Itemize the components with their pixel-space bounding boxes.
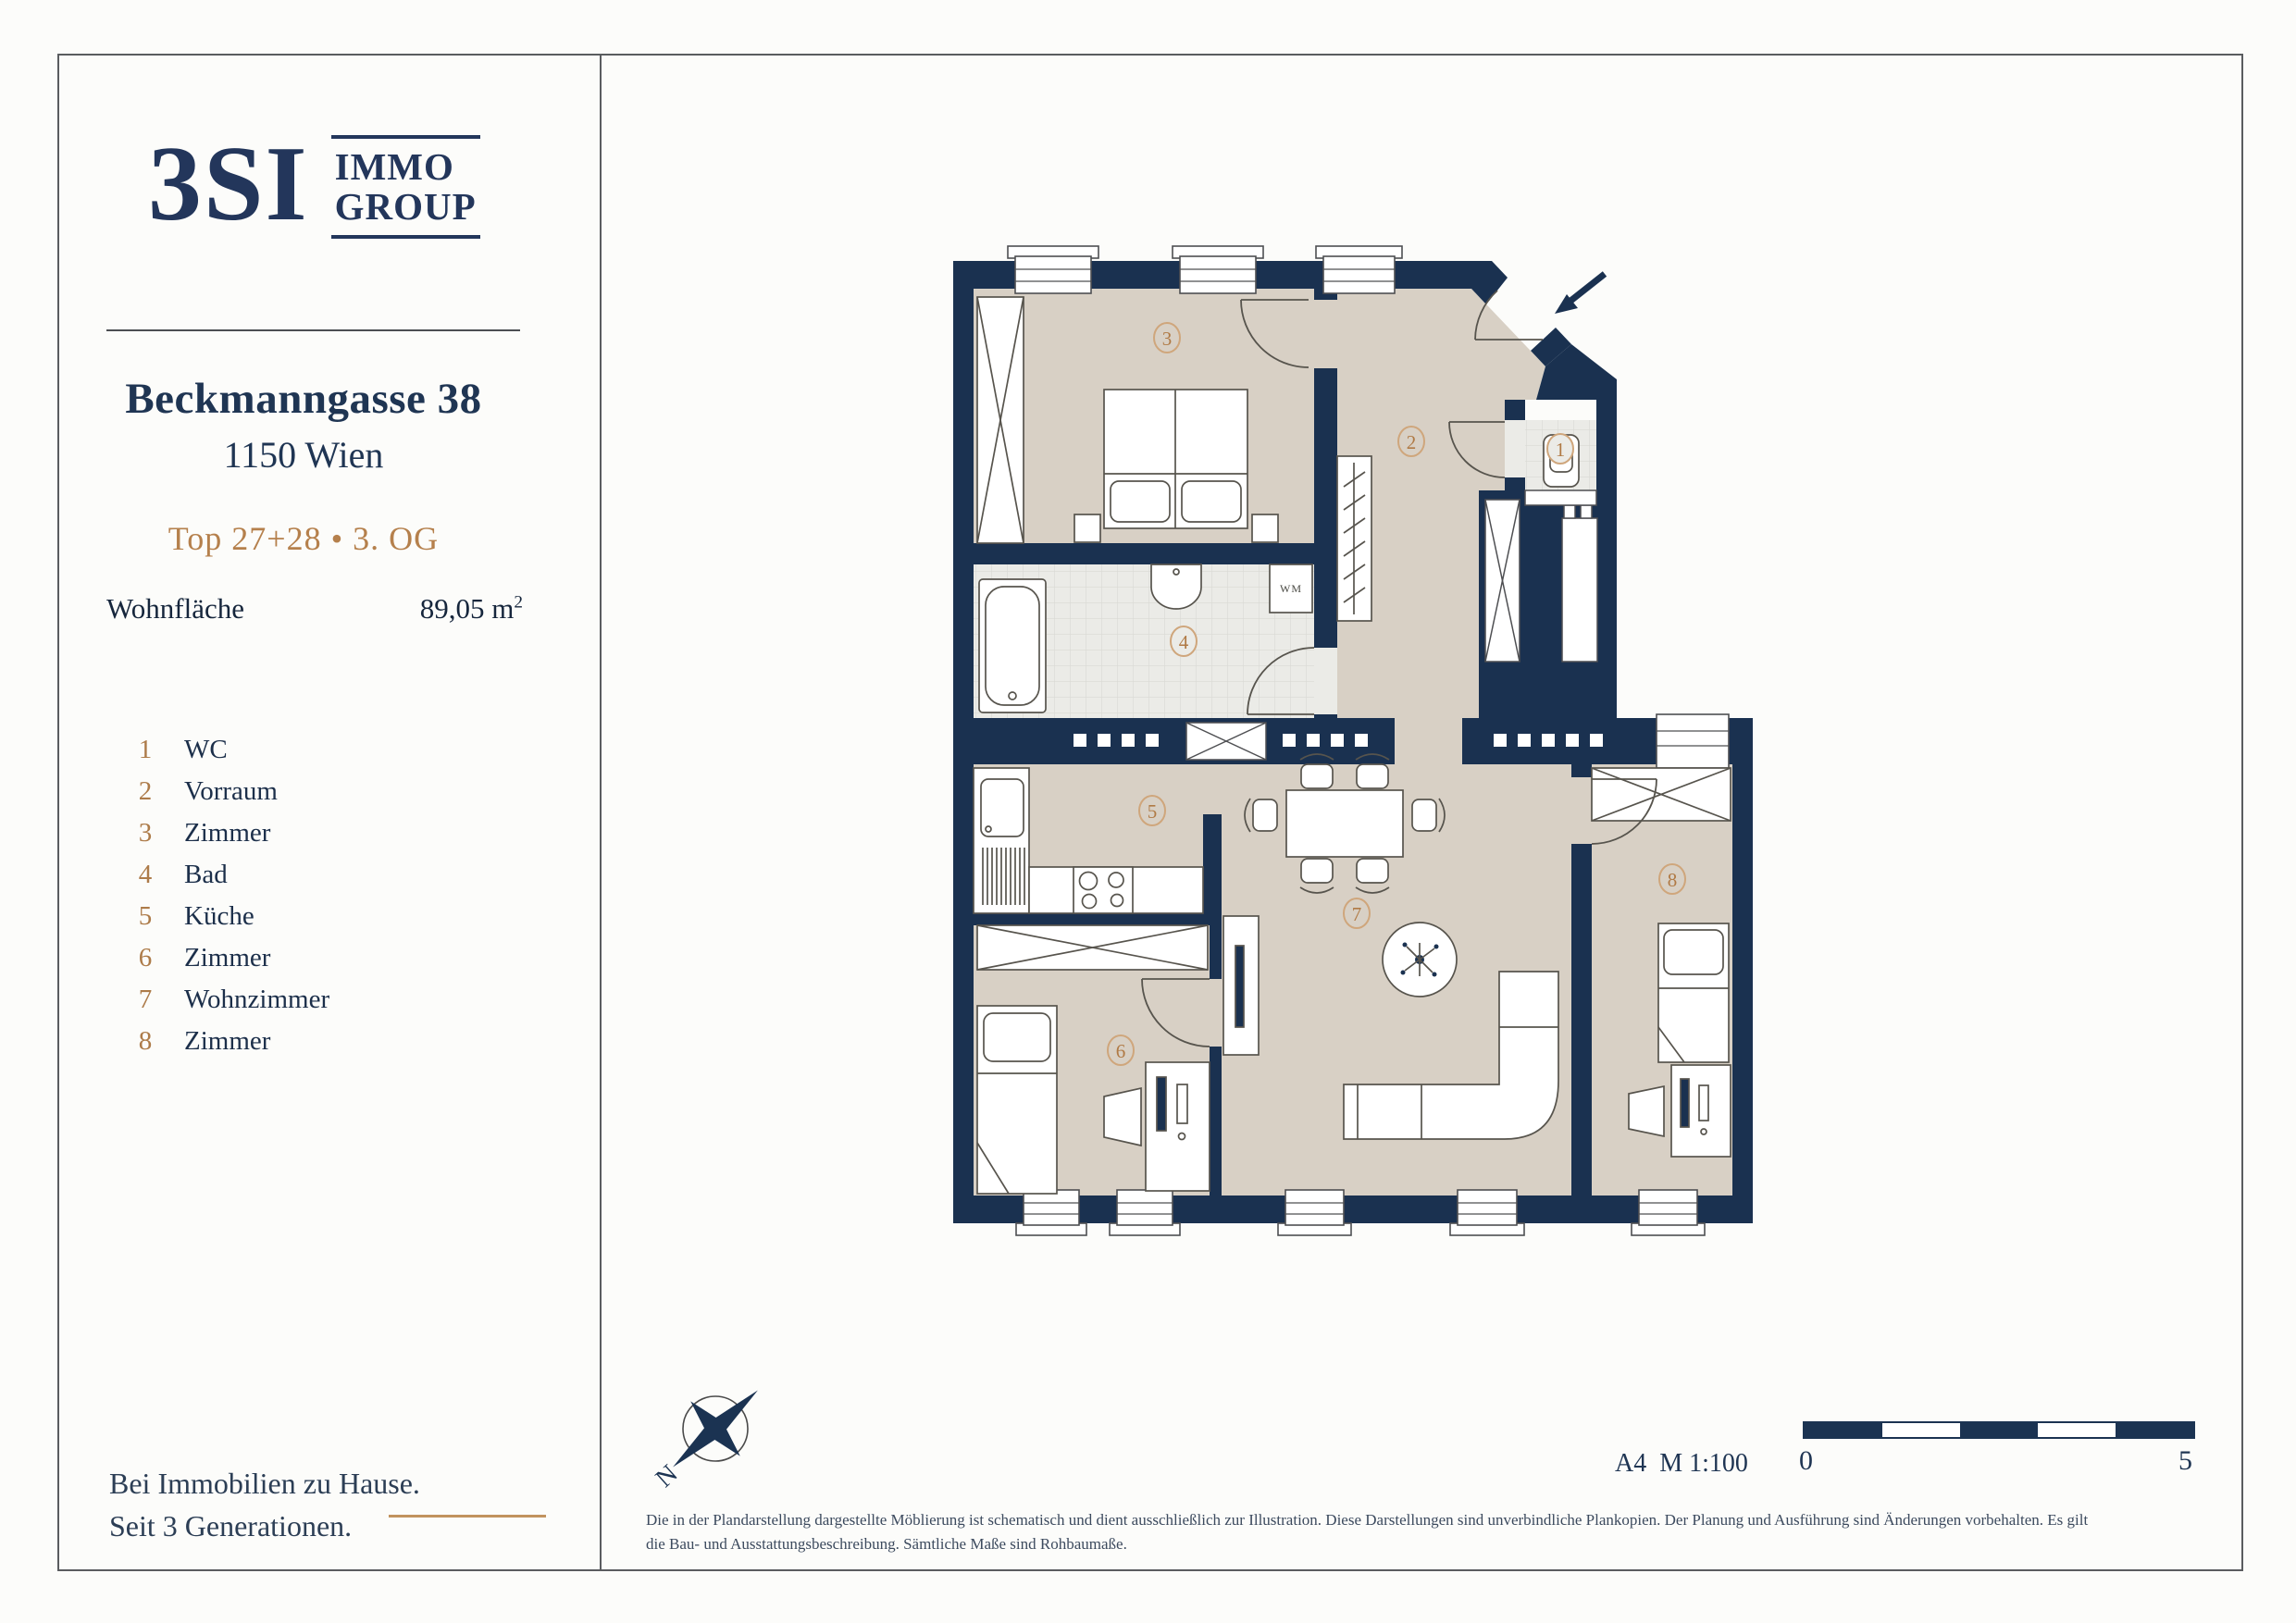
svg-text:2: 2 — [1407, 431, 1417, 453]
legend-num: 6 — [127, 943, 164, 973]
legend-num: 7 — [127, 985, 164, 1015]
closet-icon — [1337, 456, 1371, 621]
dining-table-icon — [1286, 790, 1403, 857]
svg-text:4: 4 — [1179, 631, 1189, 653]
double-bed-icon — [1074, 390, 1278, 542]
logo-subtext: IMMO GROUP — [331, 135, 480, 239]
compass-star — [673, 1391, 758, 1468]
room-legend: 1WC 2Vorraum 3Zimmer 4Bad 5Küche 6Zimmer… — [127, 729, 329, 1062]
legend-item-3: 3Zimmer — [127, 812, 329, 854]
legend-item-6: 6Zimmer — [127, 937, 329, 979]
scale-bar-segment — [1805, 1423, 1882, 1437]
room-badge-5: 5 — [1139, 796, 1165, 825]
north-label: N — [651, 1459, 684, 1493]
legend-label: Küche — [184, 901, 254, 932]
legend-item-5: 5Küche — [127, 896, 329, 937]
kitchen-counter-icon — [1029, 867, 1203, 913]
legend-label: Vorraum — [184, 776, 278, 807]
legend-item-8: 8Zimmer — [127, 1021, 329, 1062]
legend-label: Zimmer — [184, 1026, 270, 1057]
legend-num: 2 — [127, 776, 164, 807]
logo-sub-bottom: GROUP — [335, 187, 477, 227]
legend-num: 4 — [127, 860, 164, 890]
scale-bar — [1803, 1421, 2195, 1439]
floorplan-page: 3SI IMMO GROUP Beckmanngasse 38 1150 Wie… — [0, 0, 2296, 1623]
wall-vents — [1074, 734, 1603, 747]
floorplan: 1 2 3 4 5 6 7 8 WM — [944, 241, 1786, 1268]
compass-icon: N — [646, 1362, 785, 1501]
svg-text:6: 6 — [1116, 1040, 1126, 1062]
scale-bar-segment — [2116, 1423, 2193, 1437]
legend-item-4: 4Bad — [127, 854, 329, 896]
wardrobe-icon — [977, 297, 1024, 543]
legend-item-1: 1WC — [127, 729, 329, 771]
address-city: 1150 Wien — [81, 433, 526, 477]
scale-bar-segment — [2038, 1423, 2116, 1437]
unit-info: Top 27+28 • 3. OG — [81, 519, 526, 558]
room-badge-2: 2 — [1398, 427, 1424, 456]
legend-label: Wohnzimmer — [184, 985, 329, 1015]
panel-divider — [600, 54, 602, 1569]
single-bed-icon — [1658, 923, 1729, 1062]
brand-logo: 3SI IMMO GROUP — [148, 135, 480, 239]
legend-label: WC — [184, 735, 228, 765]
scale-text: A4 M 1:100 — [1615, 1449, 1748, 1479]
brand-accent-line — [389, 1515, 546, 1518]
svg-text:8: 8 — [1668, 869, 1678, 891]
logo-wordmark: 3SI — [148, 135, 309, 239]
legend-num: 8 — [127, 1026, 164, 1057]
svg-text:1: 1 — [1556, 439, 1566, 461]
svg-text:5: 5 — [1148, 800, 1158, 823]
legend-label: Zimmer — [184, 943, 270, 973]
wm-label: WM — [1280, 582, 1302, 595]
legend-item-7: 7Wohnzimmer — [127, 979, 329, 1021]
area-label: Wohnfläche — [106, 592, 244, 626]
logo-divider — [106, 329, 520, 331]
disclaimer-text: Die in der Plandarstellung dargestellte … — [646, 1508, 2090, 1557]
legend-num: 1 — [127, 735, 164, 765]
room-badge-8: 8 — [1659, 864, 1685, 894]
legend-num: 5 — [127, 901, 164, 932]
wardrobe-icon — [1592, 768, 1731, 821]
tagline-line2: Seit 3 Generationen. — [109, 1505, 420, 1547]
address-block: Beckmanngasse 38 1150 Wien Top 27+28 • 3… — [81, 374, 526, 558]
wardrobe-icon — [977, 925, 1208, 970]
floorplan-svg: 1 2 3 4 5 6 7 8 WM — [944, 241, 1786, 1268]
tv-sideboard-icon — [1223, 916, 1259, 1055]
tagline-line1: Bei Immobilien zu Hause. — [109, 1462, 420, 1505]
scale-end-label: 5 — [2178, 1445, 2192, 1477]
brand-tagline: Bei Immobilien zu Hause. Seit 3 Generati… — [109, 1462, 420, 1548]
legend-num: 3 — [127, 818, 164, 849]
area-value: 89,05 m2 — [420, 592, 523, 626]
kitchen-sink-unit-icon — [974, 768, 1029, 913]
room-badge-3: 3 — [1154, 323, 1180, 353]
scale-bar-segment — [1960, 1423, 2038, 1437]
single-bed-icon — [977, 1006, 1057, 1194]
legend-label: Bad — [184, 860, 228, 890]
legend-item-2: 2Vorraum — [127, 771, 329, 812]
living-area-row: Wohnfläche 89,05 m2 — [106, 592, 523, 626]
scale-bar-segment — [1882, 1423, 1960, 1437]
scale-start-label: 0 — [1799, 1445, 1813, 1477]
svg-text:3: 3 — [1162, 328, 1173, 350]
sink-icon — [1151, 564, 1201, 609]
room-badge-1: 1 — [1547, 434, 1573, 464]
room-badge-6: 6 — [1108, 1035, 1134, 1065]
rug-plant-icon — [1383, 923, 1457, 997]
bathtub-icon — [979, 579, 1046, 712]
entrance-arrow-icon — [1555, 274, 1605, 314]
room-badge-4: 4 — [1171, 626, 1197, 656]
legend-label: Zimmer — [184, 818, 270, 849]
address-street: Beckmanngasse 38 — [81, 374, 526, 424]
room-badge-7: 7 — [1344, 898, 1370, 928]
svg-text:7: 7 — [1352, 903, 1362, 925]
logo-sub-top: IMMO — [335, 147, 477, 187]
